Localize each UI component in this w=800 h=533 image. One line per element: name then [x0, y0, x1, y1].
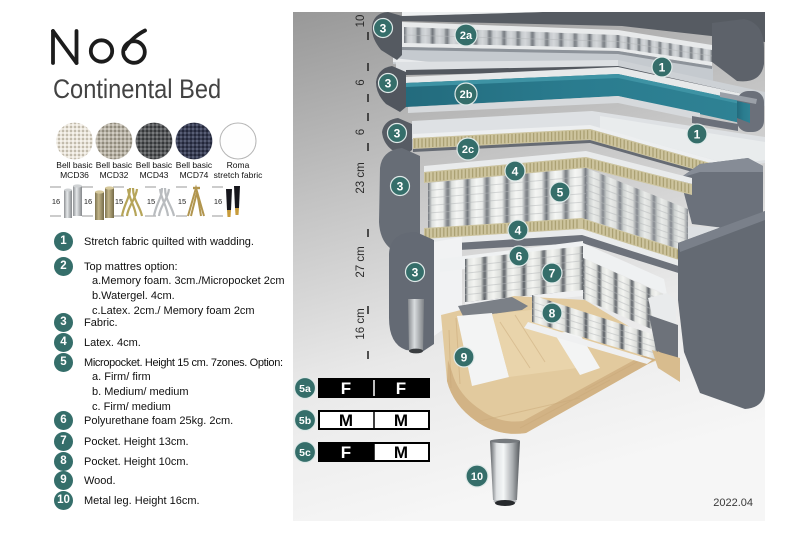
svg-text:15: 15: [147, 197, 155, 206]
svg-text:MCD43: MCD43: [140, 170, 169, 180]
svg-text:Bell basic: Bell basic: [136, 160, 173, 170]
svg-text:F: F: [396, 379, 406, 398]
svg-text:16 cm: 16 cm: [355, 308, 367, 339]
svg-text:3: 3: [380, 21, 387, 35]
svg-text:27 cm: 27 cm: [355, 246, 367, 277]
svg-text:5b: 5b: [299, 415, 311, 427]
svg-text:4: 4: [512, 164, 519, 178]
svg-text:4: 4: [515, 223, 522, 237]
svg-text:6: 6: [355, 79, 367, 85]
svg-text:M: M: [394, 443, 408, 462]
svg-text:F: F: [341, 443, 351, 462]
svg-text:10: 10: [471, 471, 483, 483]
svg-text:MCD36: MCD36: [60, 170, 89, 180]
svg-text:6: 6: [355, 129, 367, 135]
svg-text:9: 9: [461, 350, 468, 364]
svg-text:15: 15: [178, 197, 186, 206]
svg-text:1: 1: [659, 60, 666, 74]
svg-text:F: F: [341, 379, 351, 398]
svg-text:5a: 5a: [299, 383, 311, 395]
svg-text:M: M: [339, 411, 353, 430]
svg-text:Bell basic: Bell basic: [56, 160, 93, 170]
svg-text:MCD32: MCD32: [100, 170, 129, 180]
svg-text:M: M: [394, 411, 408, 430]
svg-text:3: 3: [385, 76, 392, 90]
svg-text:2c: 2c: [462, 144, 474, 156]
svg-text:16: 16: [52, 197, 60, 206]
svg-text:10: 10: [355, 15, 367, 28]
svg-text:Bell basic: Bell basic: [96, 160, 133, 170]
svg-text:5c: 5c: [299, 447, 311, 459]
svg-text:Roma: Roma: [227, 160, 250, 170]
svg-text:3: 3: [397, 179, 404, 193]
svg-text:5: 5: [557, 185, 564, 199]
svg-text:7: 7: [549, 266, 556, 280]
svg-text:Bell basic: Bell basic: [176, 160, 213, 170]
svg-text:MCD74: MCD74: [180, 170, 209, 180]
svg-text:16: 16: [84, 197, 92, 206]
svg-text:stretch fabric: stretch fabric: [214, 170, 263, 180]
svg-text:3: 3: [412, 265, 419, 279]
svg-text:2022.04: 2022.04: [713, 497, 753, 509]
svg-text:6: 6: [516, 249, 523, 263]
svg-text:2a: 2a: [460, 30, 473, 42]
svg-text:2b: 2b: [460, 89, 473, 101]
svg-text:23 cm: 23 cm: [355, 162, 367, 193]
svg-text:1: 1: [694, 127, 701, 141]
svg-text:3: 3: [394, 126, 401, 140]
svg-text:8: 8: [549, 306, 556, 320]
svg-text:16: 16: [214, 197, 222, 206]
svg-text:15: 15: [115, 197, 123, 206]
